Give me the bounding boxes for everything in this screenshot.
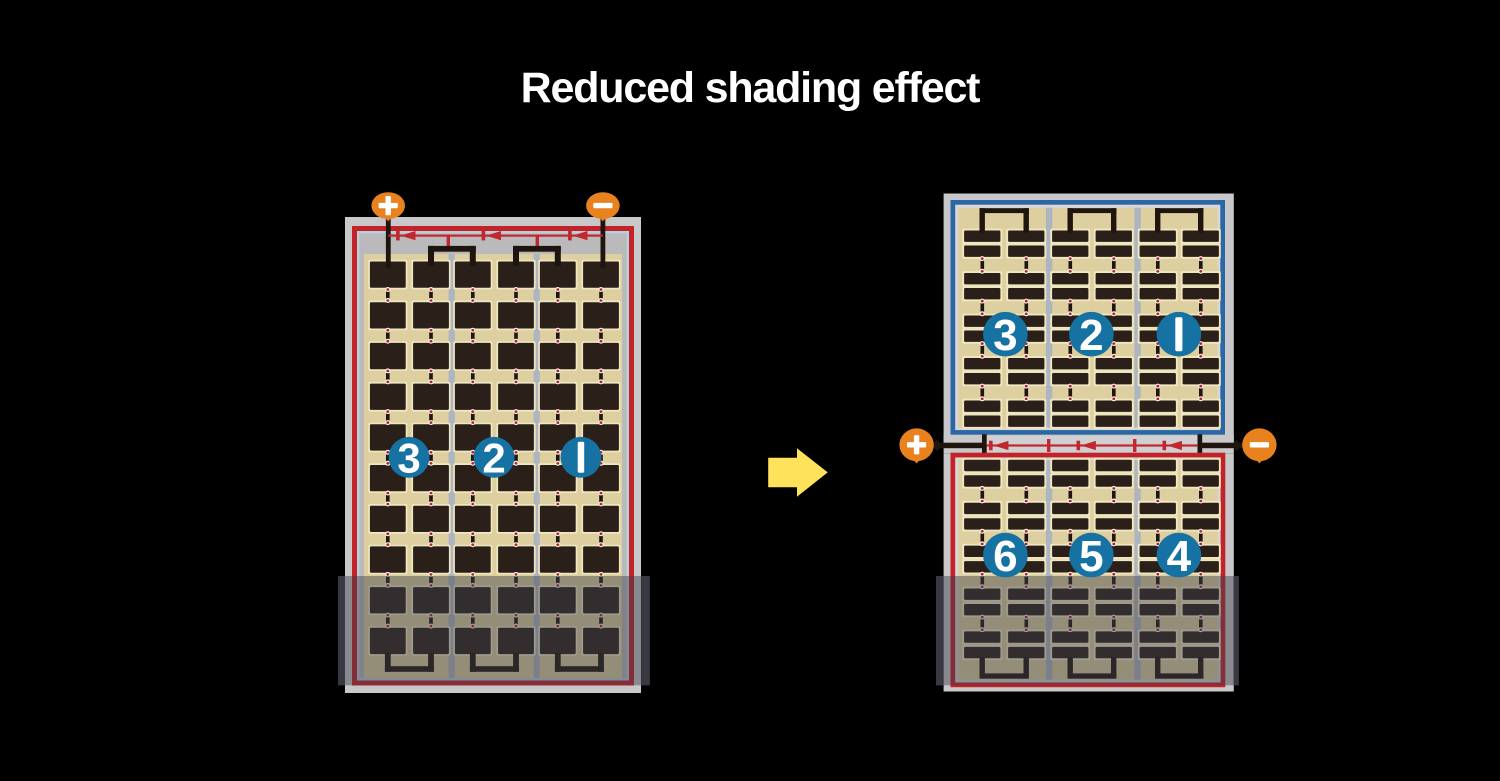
svg-text:6: 6 [993, 532, 1017, 581]
svg-text:3: 3 [397, 434, 420, 481]
svg-text:4: 4 [1167, 532, 1192, 581]
svg-text:2: 2 [482, 434, 505, 481]
svg-text:3: 3 [993, 311, 1017, 360]
svg-text:2: 2 [1079, 311, 1103, 360]
svg-text:Reduced shading effect: Reduced shading effect [521, 64, 981, 112]
svg-text:5: 5 [1079, 532, 1103, 581]
